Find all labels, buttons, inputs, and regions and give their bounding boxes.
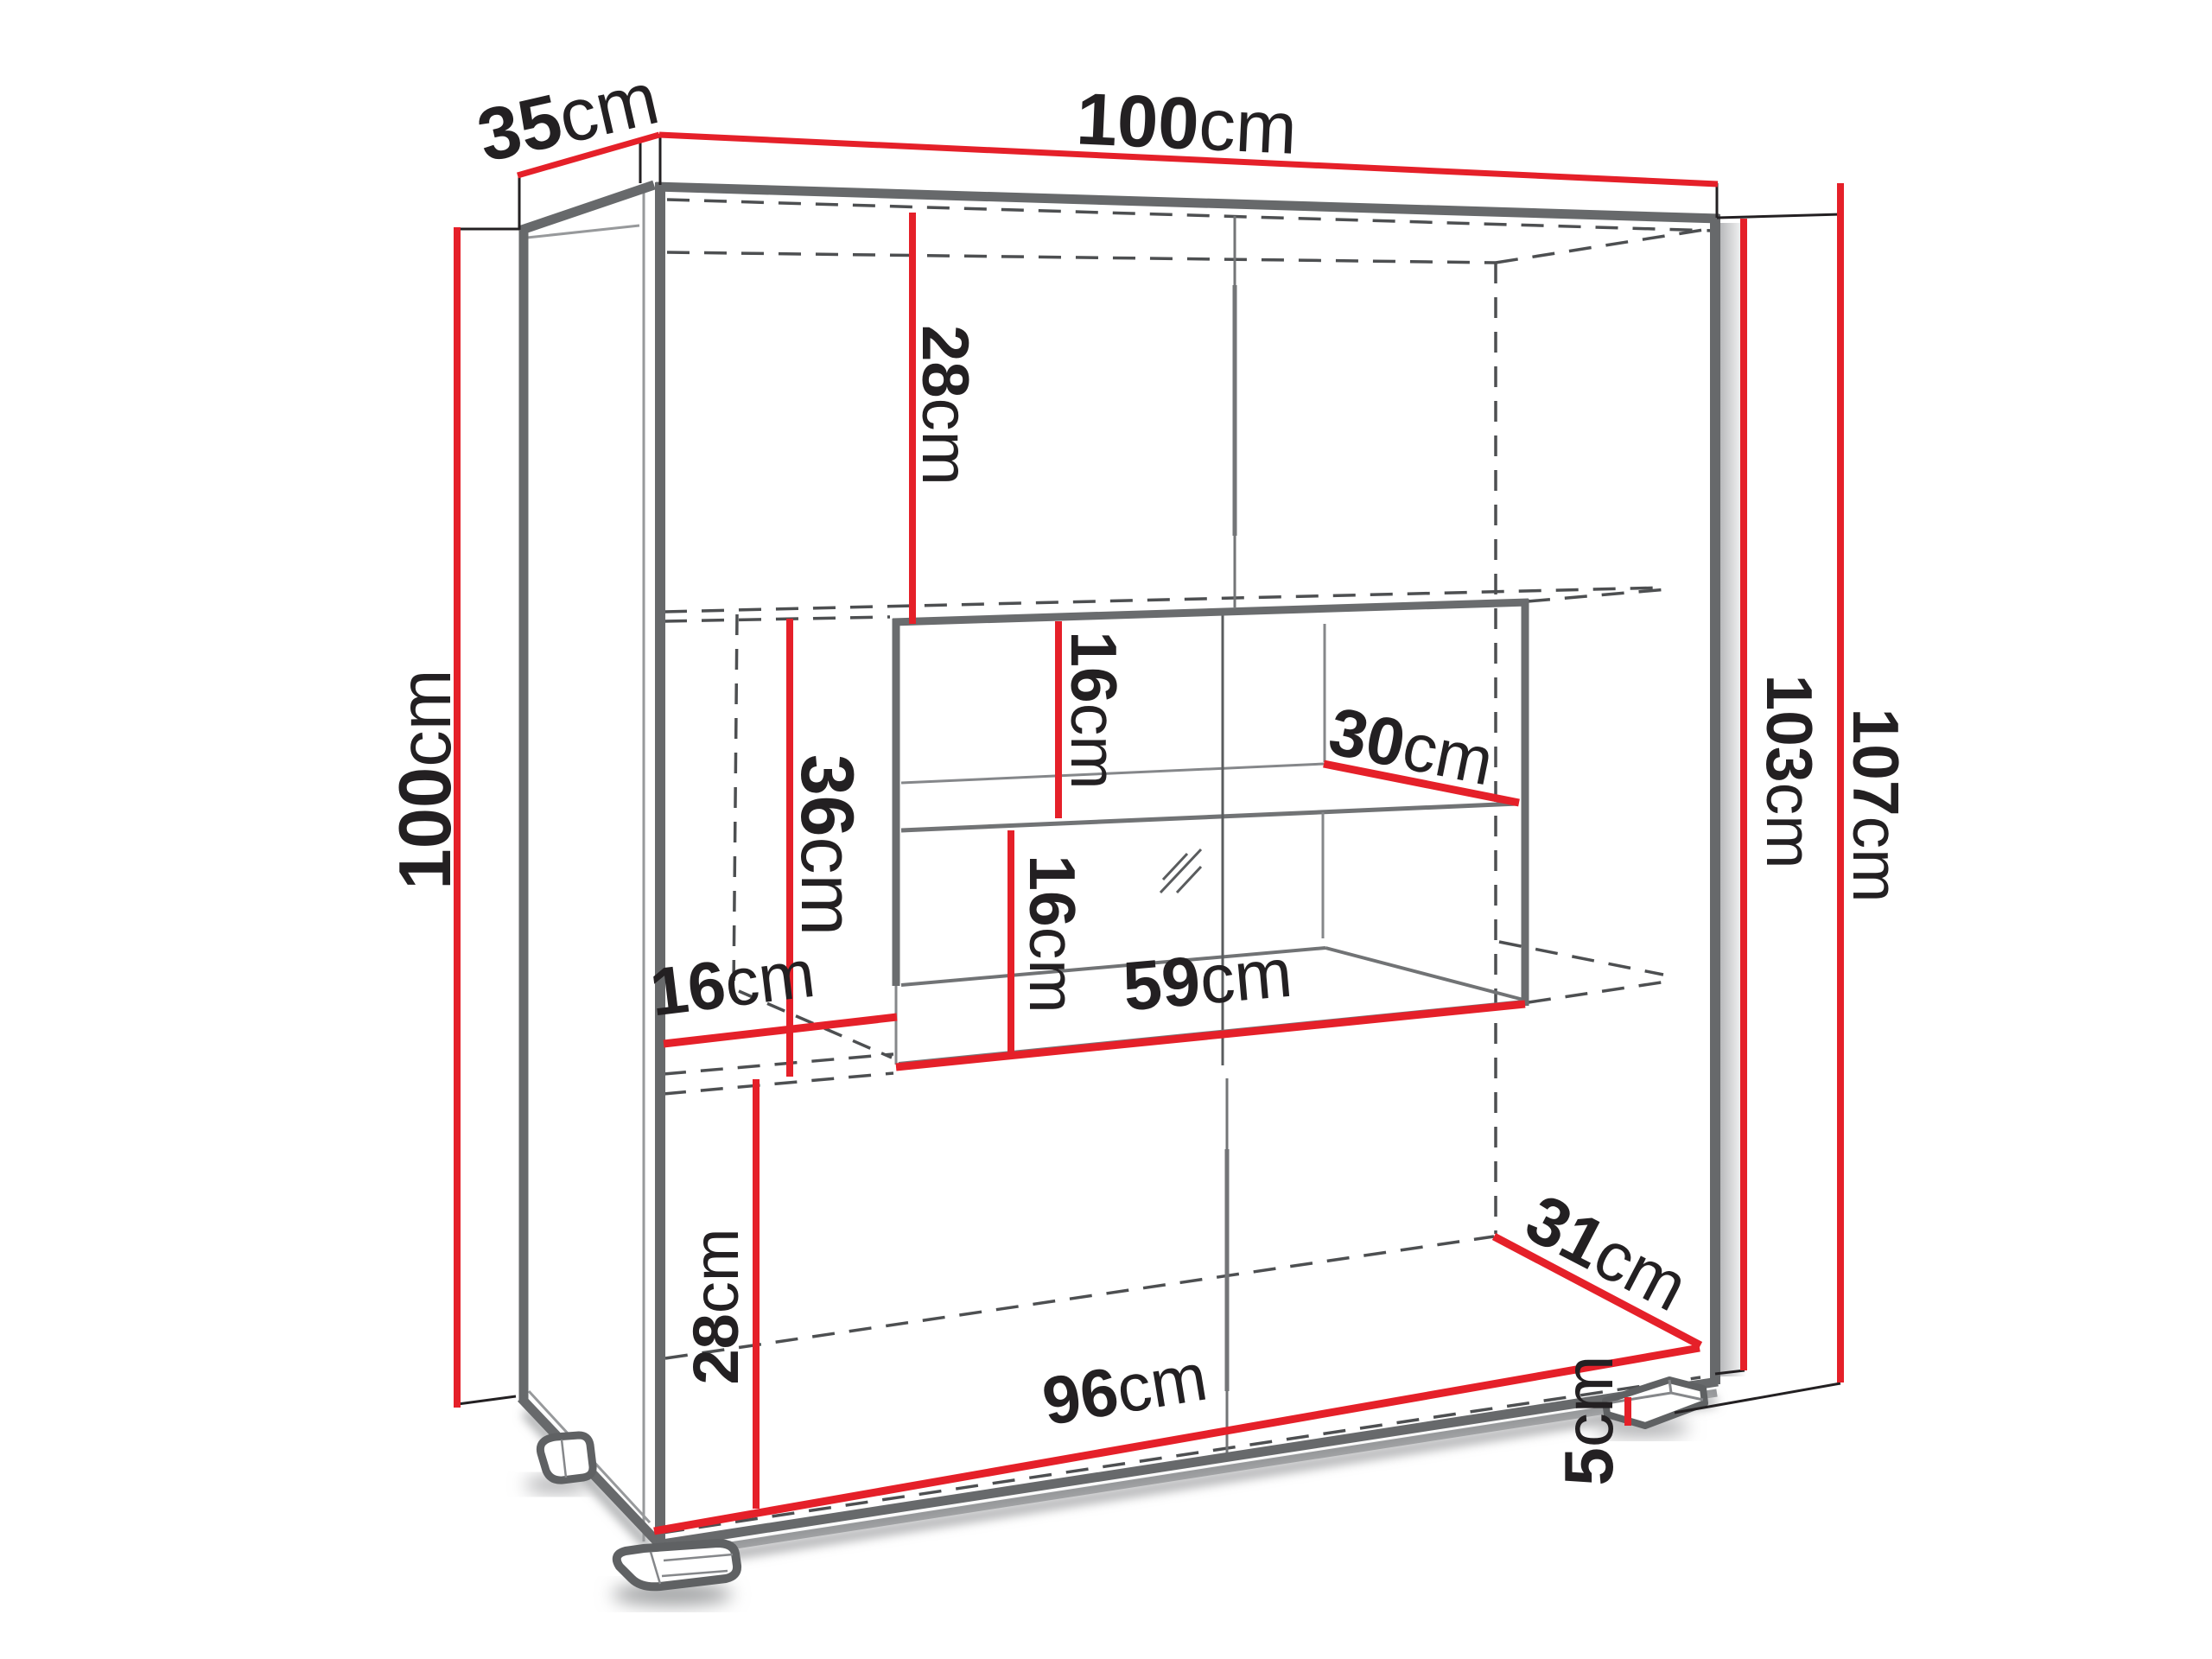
svg-text:100cm: 100cm	[385, 669, 467, 889]
svg-text:5cm: 5cm	[1550, 1355, 1627, 1485]
svg-text:100cm: 100cm	[1075, 78, 1299, 169]
svg-text:28cm: 28cm	[680, 1229, 752, 1385]
svg-text:103cm: 103cm	[1753, 674, 1826, 868]
svg-text:59cm: 59cm	[1120, 934, 1295, 1026]
svg-text:16cm: 16cm	[1058, 631, 1130, 789]
svg-text:36cm: 36cm	[785, 754, 868, 936]
svg-text:28cm: 28cm	[908, 325, 982, 486]
svg-text:16cm: 16cm	[1016, 855, 1089, 1013]
svg-text:107cm: 107cm	[1840, 708, 1912, 902]
